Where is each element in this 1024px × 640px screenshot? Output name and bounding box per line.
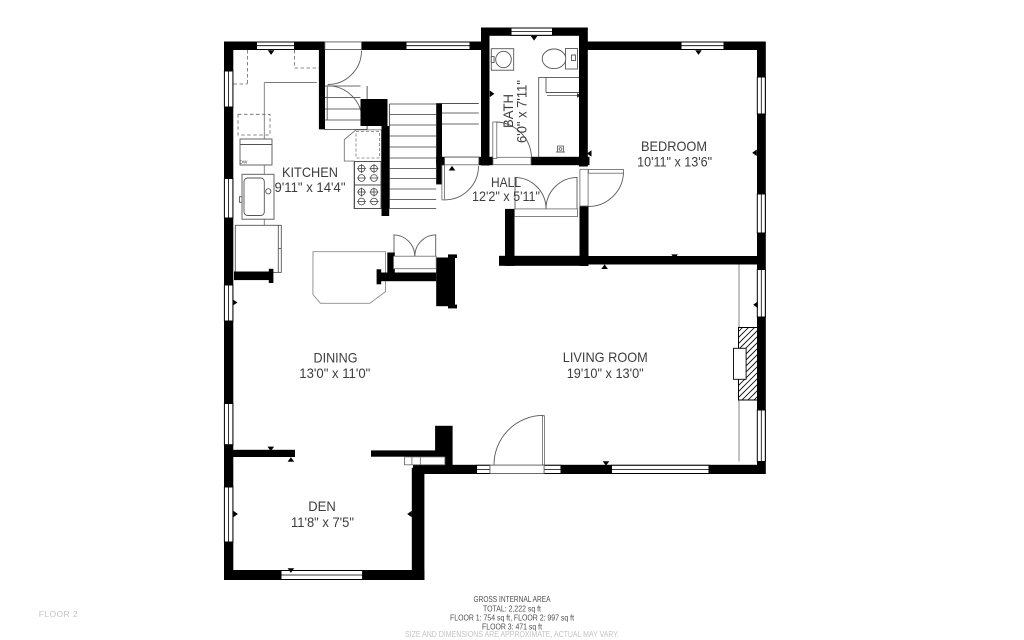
svg-text:FLOOR 1: 754 sq ft, FLOOR 2: 9: FLOOR 1: 754 sq ft, FLOOR 2: 997 sq ft [450,614,575,623]
svg-text:13'0" x 11'0": 13'0" x 11'0" [299,366,370,381]
svg-text:19'10" x 13'0": 19'10" x 13'0" [567,366,644,381]
svg-text:DW: DW [240,160,248,165]
svg-text:TOTAL: 2,222 sq ft: TOTAL: 2,222 sq ft [483,604,542,613]
svg-text:BEDROOM: BEDROOM [641,139,707,154]
svg-text:12'2" x 5'11": 12'2" x 5'11" [472,189,540,204]
svg-text:10'11" x 13'6": 10'11" x 13'6" [637,155,712,170]
svg-text:LIVING ROOM: LIVING ROOM [563,350,648,365]
svg-text:DEN: DEN [308,499,336,514]
svg-text:SIZE AND DIMENSIONS ARE APPROX: SIZE AND DIMENSIONS ARE APPROXIMATE, ACT… [405,630,619,639]
svg-text:11'8" x 7'5": 11'8" x 7'5" [291,515,354,530]
svg-text:KITCHEN: KITCHEN [282,165,338,180]
svg-text:HALL: HALL [491,175,521,190]
svg-text:6'0" x 7'11": 6'0" x 7'11" [515,80,530,143]
svg-text:DINING: DINING [314,351,358,366]
svg-text:9'11" x 14'4": 9'11" x 14'4" [275,180,346,195]
svg-text:FLOOR 2: FLOOR 2 [39,609,78,619]
svg-text:GROSS INTERNAL AREA: GROSS INTERNAL AREA [474,595,552,604]
